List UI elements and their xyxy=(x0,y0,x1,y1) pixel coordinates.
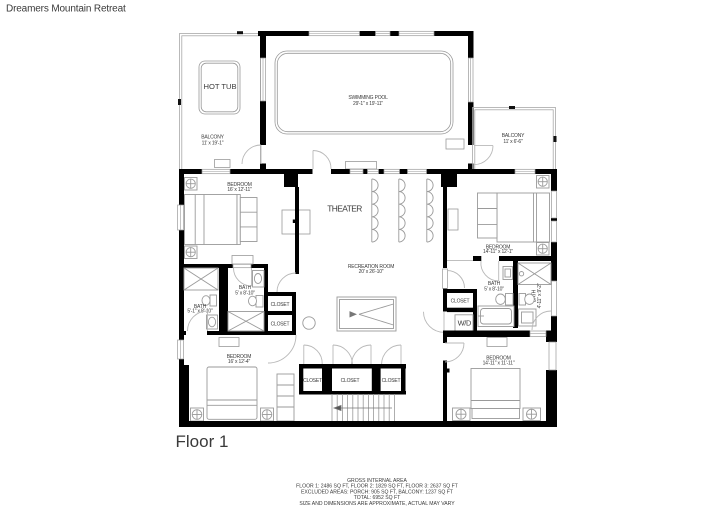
svg-text:Dreamers Mountain Retreat: Dreamers Mountain Retreat xyxy=(6,4,126,15)
svg-text:16' x 12'-4": 16' x 12'-4" xyxy=(228,359,251,365)
svg-text:CLOSET: CLOSET xyxy=(341,378,360,384)
svg-text:14'-11" x 12'-1": 14'-11" x 12'-1" xyxy=(483,249,513,255)
svg-text:4'-11" x 9'-2": 4'-11" x 9'-2" xyxy=(537,283,543,308)
svg-text:CLOSET: CLOSET xyxy=(451,299,470,305)
svg-text:16' x 12'-11": 16' x 12'-11" xyxy=(227,187,252,193)
svg-text:CLOSET: CLOSET xyxy=(382,378,401,384)
svg-text:5' x 8'-10": 5' x 8'-10" xyxy=(235,291,255,297)
svg-text:CLOSET: CLOSET xyxy=(271,302,290,308)
svg-text:SIZE AND DIMENSIONS ARE APPROX: SIZE AND DIMENSIONS ARE APPROXIMATE, ACT… xyxy=(299,501,455,507)
svg-text:W/D: W/D xyxy=(458,319,471,328)
svg-text:Floor 1: Floor 1 xyxy=(176,432,229,451)
svg-text:CLOSET: CLOSET xyxy=(271,322,290,328)
svg-text:11' x 6'-6": 11' x 6'-6" xyxy=(503,139,523,145)
svg-text:5'-1" x 8'-10": 5'-1" x 8'-10" xyxy=(187,309,213,315)
svg-text:14'-11" x 11'-11": 14'-11" x 11'-11" xyxy=(483,360,515,366)
svg-text:11' x 19'-1": 11' x 19'-1" xyxy=(202,141,224,147)
svg-text:THEATER: THEATER xyxy=(327,203,362,213)
svg-text:20' x 26'-10": 20' x 26'-10" xyxy=(359,269,384,275)
svg-text:29'-1" x 19'-11": 29'-1" x 19'-11" xyxy=(353,101,383,107)
svg-text:HOT TUB: HOT TUB xyxy=(203,82,236,91)
svg-text:CLOSET: CLOSET xyxy=(303,378,322,384)
svg-text:5' x 8'-10": 5' x 8'-10" xyxy=(484,287,504,293)
